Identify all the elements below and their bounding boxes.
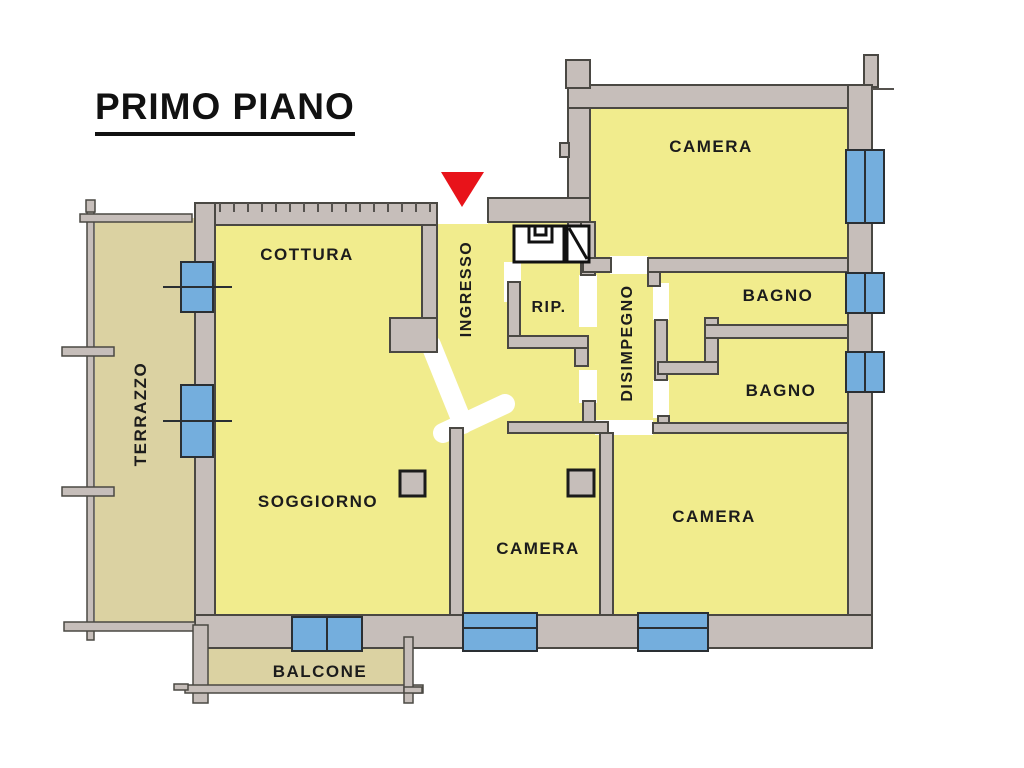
wall-segment: [648, 258, 848, 272]
boiler-icon: [535, 226, 546, 235]
wall-segment: [705, 325, 848, 338]
pillar: [400, 471, 425, 496]
window: [638, 613, 708, 651]
page-title: PRIMO PIANO: [95, 86, 355, 136]
door-gap-bagno-2: [653, 380, 669, 418]
door-gap-camera-top: [610, 256, 648, 274]
window: [463, 613, 537, 651]
appliance-symbols: [514, 226, 589, 262]
room-label-rip: RIP.: [531, 299, 566, 317]
wall-segment: [566, 60, 590, 88]
wall-segment: [653, 423, 848, 433]
room-label-ingresso: INGRESSO: [458, 241, 476, 337]
room-label-camera-top: CAMERA: [669, 137, 753, 157]
wall-segment: [648, 272, 660, 286]
wall-segment: [864, 55, 878, 87]
wall-segment: [508, 282, 520, 342]
wall-segment: [658, 362, 718, 374]
door-gap-bagno-1: [653, 283, 669, 320]
wall-segment: [390, 318, 437, 352]
wall-segment: [600, 433, 613, 615]
wall-segment: [575, 348, 588, 366]
room-label-cottura: COTTURA: [260, 245, 354, 265]
door-gap-disimpegno-lower: [579, 370, 597, 403]
room-label-bagno-1: BAGNO: [743, 286, 814, 306]
room-label-balcone: BALCONE: [273, 662, 368, 682]
camera-top-floor: [585, 105, 848, 263]
pillar: [568, 470, 594, 496]
room-label-soggiorno: SOGGIORNO: [258, 492, 378, 512]
wall-segment: [508, 336, 588, 348]
wall-segment: [560, 143, 569, 157]
room-label-camera-mid: CAMERA: [496, 539, 580, 559]
room-label-terrazzo: TERRAZZO: [131, 362, 151, 467]
wall-segment: [508, 422, 608, 433]
wall-segment: [450, 428, 463, 615]
wall-segment: [568, 85, 872, 108]
wall-segment: [488, 198, 590, 222]
room-label-camera-right: CAMERA: [672, 507, 756, 527]
room-label-bagno-2: BAGNO: [746, 381, 817, 401]
room-label-disimpegno: DISIMPEGNO: [619, 284, 637, 401]
door-gap-disimpegno-upper: [579, 275, 597, 327]
wall-segment: [195, 203, 437, 225]
